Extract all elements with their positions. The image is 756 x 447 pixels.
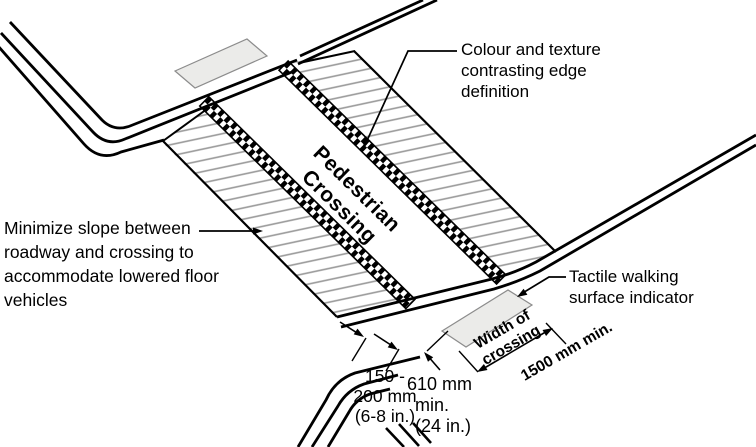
label-line: definition	[461, 81, 601, 102]
dim-label-setback: 610 mm min. (24 in.)	[407, 374, 472, 437]
label-line: roadway and crossing to	[4, 240, 219, 264]
dim-edge-arrowhead-1	[354, 329, 364, 337]
dim-edge-tick-1	[352, 338, 366, 361]
dim-setback-tick	[427, 331, 448, 351]
dim-line: min.	[407, 395, 472, 416]
label-line: Colour and texture	[461, 39, 601, 60]
label-line: surface indicator	[569, 287, 694, 308]
label-line: vehicles	[4, 288, 219, 312]
dim-width-tick-right	[546, 323, 566, 344]
label-tactile-indicator: Tactile walking surface indicator	[569, 266, 694, 308]
label-line: Minimize slope between	[4, 216, 219, 240]
label-line: accommodate lowered floor	[4, 264, 219, 288]
leader-tactile	[521, 277, 566, 294]
curb-topleft-3	[0, 46, 164, 156]
arrowhead-tactile	[517, 289, 527, 297]
curb-upper-road-1	[298, 0, 437, 64]
label-line: contrasting edge	[461, 60, 601, 81]
dim-line: 610 mm	[407, 374, 472, 395]
curb-topleft-1	[10, 22, 297, 128]
curb-upper-road-2	[300, 0, 423, 56]
dim-width-tick-left	[459, 351, 478, 372]
label-line: Tactile walking	[569, 266, 694, 287]
dim-line: (24 in.)	[407, 416, 472, 437]
tactile-strip-top	[175, 39, 267, 88]
label-minimize-slope: Minimize slope between roadway and cross…	[4, 216, 219, 312]
pedestrian-crossing-diagram: Pedestrian Crossing Colour and texture c…	[0, 0, 756, 447]
label-edge-definition: Colour and texture contrasting edge defi…	[461, 39, 601, 102]
dim-edge-arrowhead-2	[388, 342, 398, 350]
